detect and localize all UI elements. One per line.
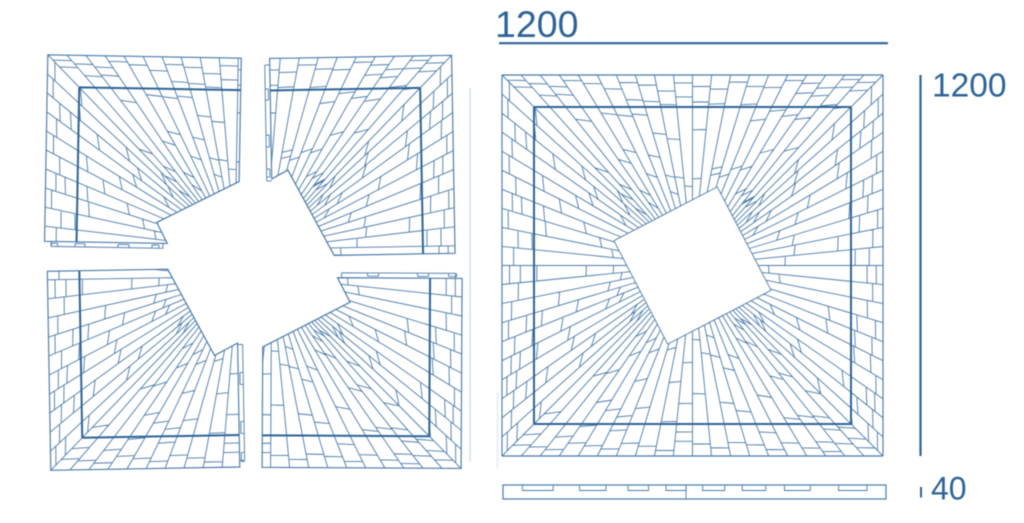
svg-text:1200: 1200 [495,3,578,45]
svg-text:1200: 1200 [932,68,1007,105]
svg-text:40: 40 [931,471,967,507]
